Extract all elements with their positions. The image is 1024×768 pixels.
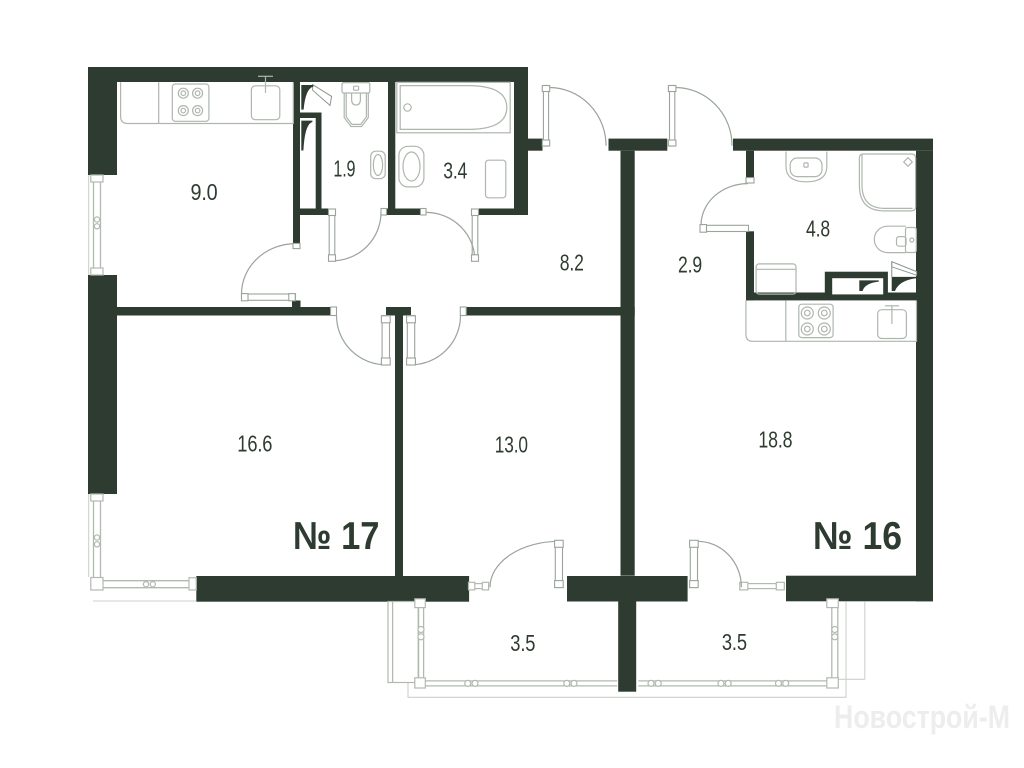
svg-text:№ 16: № 16 xyxy=(813,515,902,558)
svg-text:2.9: 2.9 xyxy=(678,252,702,278)
svg-text:18.8: 18.8 xyxy=(758,427,792,453)
svg-text:3.5: 3.5 xyxy=(510,630,535,656)
svg-text:16.6: 16.6 xyxy=(237,431,272,457)
svg-text:3.4: 3.4 xyxy=(443,158,467,184)
svg-text:1.9: 1.9 xyxy=(333,156,355,182)
svg-text:13.0: 13.0 xyxy=(495,432,528,458)
svg-text:4.8: 4.8 xyxy=(806,216,830,242)
svg-text:3.5: 3.5 xyxy=(722,629,747,655)
svg-text:9.0: 9.0 xyxy=(191,179,218,205)
svg-text:№ 17: № 17 xyxy=(293,515,380,558)
svg-text:8.2: 8.2 xyxy=(560,250,584,276)
svg-text:Новострой-М: Новострой-М xyxy=(834,699,1010,735)
